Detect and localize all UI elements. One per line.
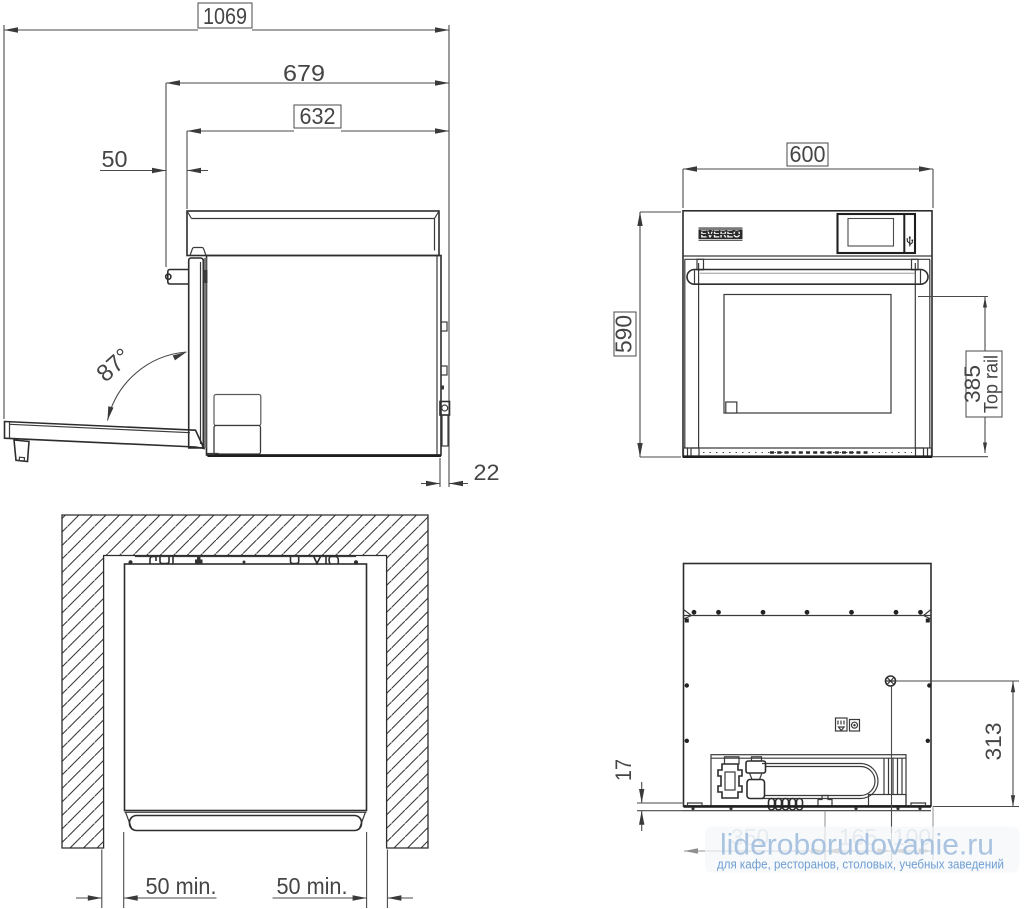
svg-text:Top rail: Top rail	[982, 355, 1003, 413]
svg-text:50 min.: 50 min.	[146, 873, 217, 899]
svg-text:1069: 1069	[203, 3, 247, 29]
svg-text:50: 50	[102, 146, 128, 172]
svg-text:17: 17	[611, 759, 636, 781]
svg-text:22: 22	[474, 460, 500, 485]
svg-text:50 min.: 50 min.	[277, 873, 348, 899]
svg-text:590: 590	[611, 315, 637, 353]
svg-text:600: 600	[790, 141, 826, 167]
svg-text:313: 313	[981, 723, 1006, 761]
svg-text:для кафе, ресторанов, столовых: для кафе, ресторанов, столовых, учебных …	[717, 858, 1004, 872]
svg-text:632: 632	[300, 103, 336, 129]
svg-text:679: 679	[283, 60, 325, 86]
